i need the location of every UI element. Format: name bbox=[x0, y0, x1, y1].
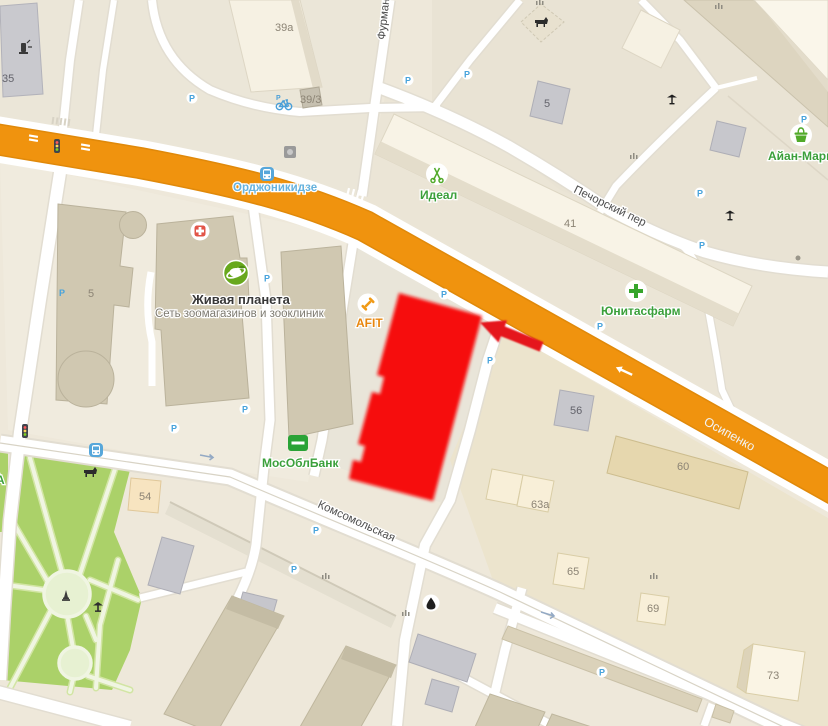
svg-text:Сеть зоомагазинов и зооклиник: Сеть зоомагазинов и зооклиник bbox=[155, 308, 325, 320]
svg-text:54: 54 bbox=[139, 491, 151, 503]
svg-text:69: 69 bbox=[647, 603, 659, 615]
svg-text:P: P bbox=[189, 93, 195, 103]
svg-text:35: 35 bbox=[2, 73, 14, 85]
svg-text:P: P bbox=[59, 288, 65, 298]
svg-text:Айан-Марке: Айан-Марке bbox=[768, 149, 828, 163]
svg-text:P: P bbox=[597, 321, 603, 331]
svg-text:АFIT: АFIT bbox=[356, 316, 383, 330]
svg-text:P: P bbox=[801, 114, 807, 124]
svg-text:P: P bbox=[313, 525, 319, 535]
svg-text:P: P bbox=[242, 404, 248, 414]
svg-text:63а: 63а bbox=[531, 499, 550, 511]
svg-text:65: 65 bbox=[567, 566, 579, 578]
svg-text:А: А bbox=[0, 473, 5, 487]
svg-text:41: 41 bbox=[564, 218, 576, 230]
svg-text:P: P bbox=[441, 289, 447, 299]
svg-text:P: P bbox=[487, 355, 493, 365]
svg-text:Орджоникидзе: Орджоникидзе bbox=[233, 182, 317, 194]
svg-text:МосОблБанк: МосОблБанк bbox=[262, 456, 339, 470]
svg-text:56: 56 bbox=[570, 405, 582, 417]
svg-text:39/3: 39/3 bbox=[300, 94, 321, 106]
svg-text:P: P bbox=[291, 564, 297, 574]
svg-text:P: P bbox=[599, 667, 605, 677]
svg-text:P: P bbox=[464, 69, 470, 79]
svg-text:60: 60 bbox=[677, 461, 689, 473]
svg-text:P: P bbox=[264, 273, 270, 283]
svg-text:39а: 39а bbox=[275, 22, 294, 34]
svg-text:Юнитасфарм: Юнитасфарм bbox=[601, 304, 681, 318]
svg-text:5: 5 bbox=[88, 288, 94, 300]
svg-text:Живая планета: Живая планета bbox=[191, 292, 291, 307]
svg-text:5: 5 bbox=[544, 98, 550, 110]
svg-text:P: P bbox=[276, 95, 281, 102]
svg-text:73: 73 bbox=[767, 670, 779, 682]
svg-text:P: P bbox=[697, 188, 703, 198]
svg-text:Идеал: Идеал bbox=[420, 188, 457, 202]
svg-text:P: P bbox=[405, 75, 411, 85]
svg-text:P: P bbox=[171, 423, 177, 433]
svg-text:P: P bbox=[699, 240, 705, 250]
